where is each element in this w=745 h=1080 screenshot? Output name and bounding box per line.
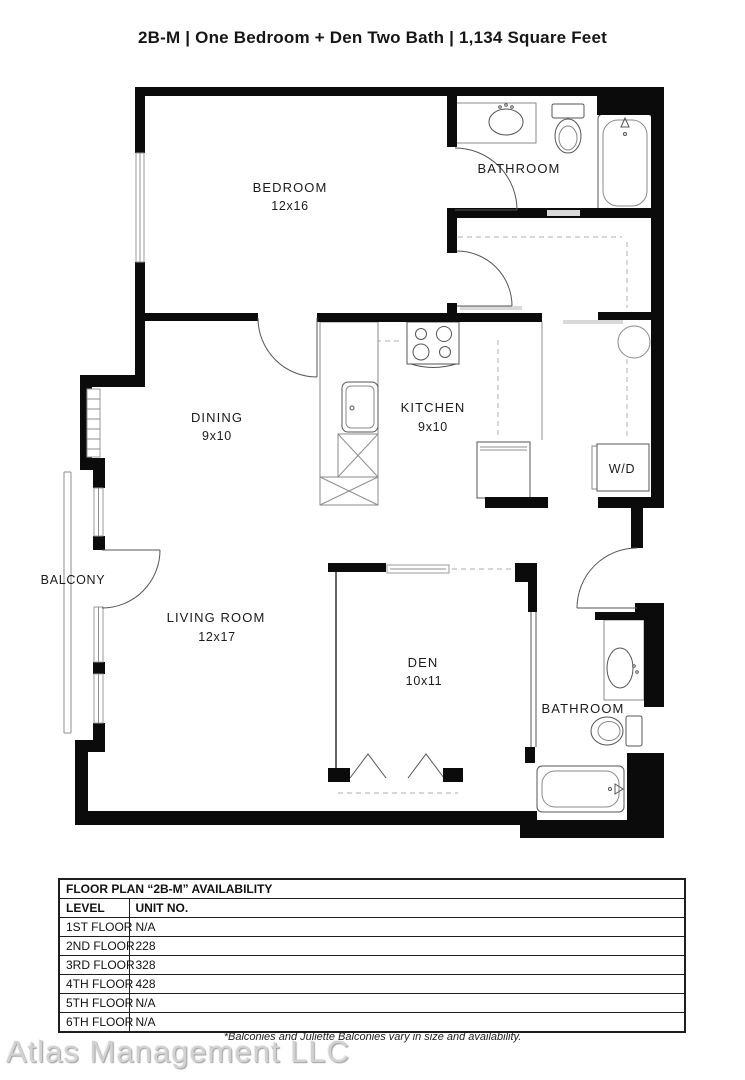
bedroom-door-arc — [258, 318, 317, 377]
bedroom-dims: 12x16 — [271, 199, 309, 213]
col-unit-no: UNIT NO. — [129, 899, 685, 918]
bathroom-bottom-label: BATHROOM — [542, 701, 625, 716]
table-row: 5TH FLOOR N/A — [59, 994, 685, 1013]
balcony-label: BALCONY — [41, 573, 106, 587]
unit-cell: N/A — [129, 1013, 685, 1033]
unit-cell: 228 — [129, 937, 685, 956]
den-walls — [336, 572, 536, 770]
kitchen-label: KITCHEN — [401, 400, 466, 415]
windows — [87, 153, 449, 723]
entry-door-arc — [577, 548, 637, 608]
table-row: 6TH FLOOR N/A — [59, 1013, 685, 1033]
dining-dims: 9x10 — [202, 429, 232, 443]
balcony-railing — [64, 472, 71, 733]
unit-cell: 328 — [129, 956, 685, 975]
toilet-icon — [552, 104, 584, 153]
floor-plan-drawing: BEDROOM 12x16 BATHROOM DINING 9x10 KITCH… — [0, 60, 745, 850]
level-cell: 2ND FLOOR — [59, 937, 129, 956]
bathtub-icon — [537, 766, 624, 812]
dining-label: DINING — [191, 410, 243, 425]
washer-dryer-label: W/D — [609, 462, 635, 476]
vanity-sink-icon — [456, 103, 536, 143]
table-row: 1ST FLOOR N/A — [59, 918, 685, 937]
balcony-door-arc — [102, 550, 160, 608]
level-cell: 1ST FLOOR — [59, 918, 129, 937]
table-header-row: LEVEL UNIT NO. — [59, 899, 685, 918]
bifold-closet-doors-icon — [350, 754, 444, 778]
unit-cell: 428 — [129, 975, 685, 994]
level-cell: 5TH FLOOR — [59, 994, 129, 1013]
vanity-sink-icon — [604, 620, 644, 700]
refrigerator-icon — [477, 442, 530, 498]
floor-plan-sheet: 2B-M | One Bedroom + Den Two Bath | 1,13… — [0, 0, 745, 1080]
kitchen-sink-icon — [342, 382, 378, 432]
sliding-door — [387, 565, 449, 573]
water-heater-icon — [618, 326, 650, 358]
col-level: LEVEL — [59, 899, 129, 918]
living-room-dims: 12x17 — [198, 630, 236, 644]
balcony-footnote: *Balconies and Juliette Balconies vary i… — [0, 1031, 745, 1043]
bedroom-label: BEDROOM — [253, 180, 328, 195]
stove-icon — [407, 322, 459, 368]
den-label: DEN — [408, 655, 439, 670]
living-room-label: LIVING ROOM — [167, 610, 266, 625]
bathtub-icon — [598, 114, 652, 212]
page-title: 2B-M | One Bedroom + Den Two Bath | 1,13… — [0, 28, 745, 48]
ladder-window — [87, 389, 100, 457]
den-dims: 10x11 — [406, 674, 443, 688]
bathroom-top-label: BATHROOM — [478, 161, 561, 176]
table-title: FLOOR PLAN “2B-M” AVAILABILITY — [59, 879, 685, 899]
level-cell: 6TH FLOOR — [59, 1013, 129, 1033]
level-cell: 3RD FLOOR — [59, 956, 129, 975]
availability-table: FLOOR PLAN “2B-M” AVAILABILITY LEVEL UNI… — [58, 878, 686, 1033]
table-row: 2ND FLOOR 228 — [59, 937, 685, 956]
bathroom-top-door-arc — [455, 148, 517, 210]
kitchen-dims: 9x10 — [418, 420, 448, 434]
table-row: 3RD FLOOR 328 — [59, 956, 685, 975]
table-row: 4TH FLOOR 428 — [59, 975, 685, 994]
unit-cell: N/A — [129, 994, 685, 1013]
toilet-icon — [591, 716, 642, 746]
level-cell: 4TH FLOOR — [59, 975, 129, 994]
closet-door-arc — [457, 251, 512, 306]
table-title-row: FLOOR PLAN “2B-M” AVAILABILITY — [59, 879, 685, 899]
unit-cell: N/A — [129, 918, 685, 937]
